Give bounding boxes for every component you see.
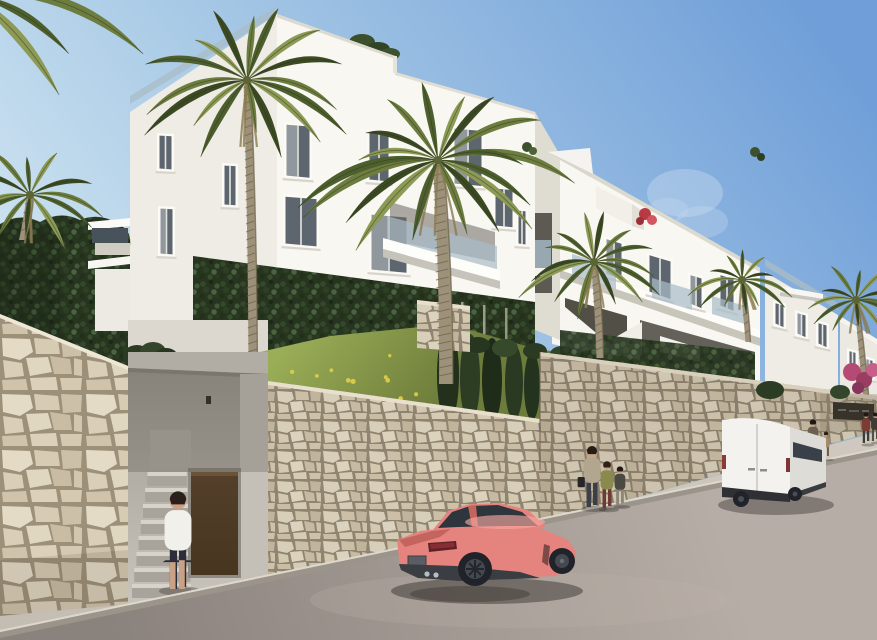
entrance-sign	[833, 402, 874, 421]
car-rear-wheel	[458, 552, 492, 586]
architectural-render-scene	[0, 0, 877, 640]
entrance-door	[191, 472, 238, 575]
stone-wall-left	[0, 314, 128, 618]
entrance-alcove	[128, 352, 268, 610]
car-front-wheel	[549, 548, 575, 574]
